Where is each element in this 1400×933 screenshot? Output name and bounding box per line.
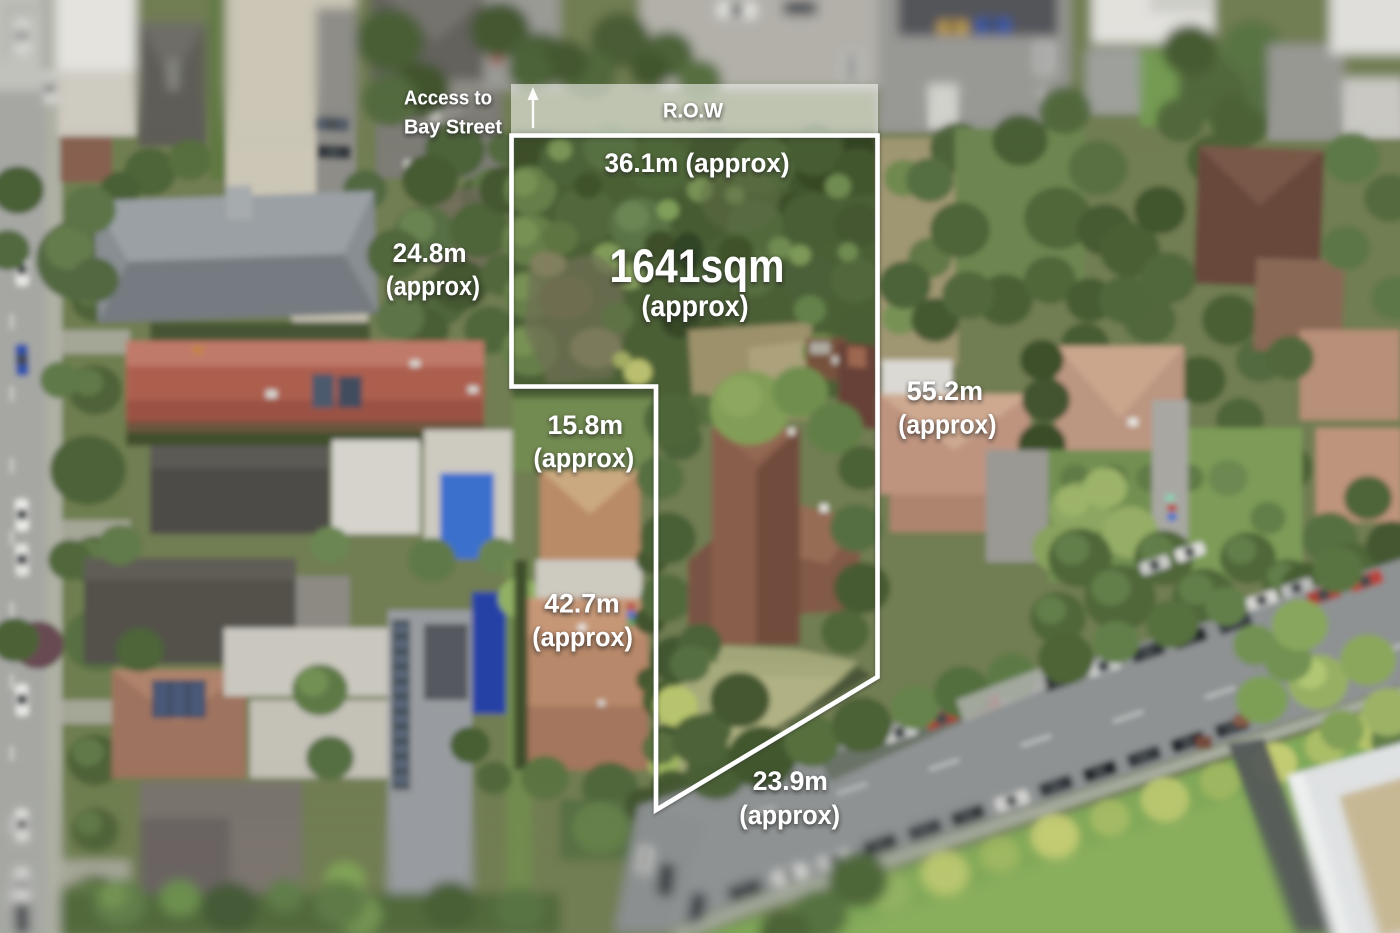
svg-text:23.9m: 23.9m (753, 766, 828, 796)
svg-text:1641sqm: 1641sqm (610, 240, 785, 293)
svg-text:Bay Street: Bay Street (404, 116, 502, 139)
svg-text:(approx): (approx) (532, 622, 633, 652)
svg-text:24.8m: 24.8m (393, 238, 467, 268)
svg-text:15.8m: 15.8m (548, 410, 624, 440)
svg-text:Access to: Access to (404, 87, 492, 110)
svg-text:(approx): (approx) (534, 443, 635, 473)
svg-text:(approx): (approx) (642, 290, 749, 323)
svg-text:36.1m (approx): 36.1m (approx) (605, 148, 790, 178)
svg-text:(approx): (approx) (898, 410, 996, 440)
svg-text:(approx): (approx) (739, 800, 840, 830)
svg-text:R.O.W: R.O.W (663, 99, 724, 123)
svg-text:42.7m: 42.7m (544, 589, 619, 619)
svg-text:(approx): (approx) (386, 271, 480, 301)
svg-text:55.2m: 55.2m (907, 376, 983, 406)
